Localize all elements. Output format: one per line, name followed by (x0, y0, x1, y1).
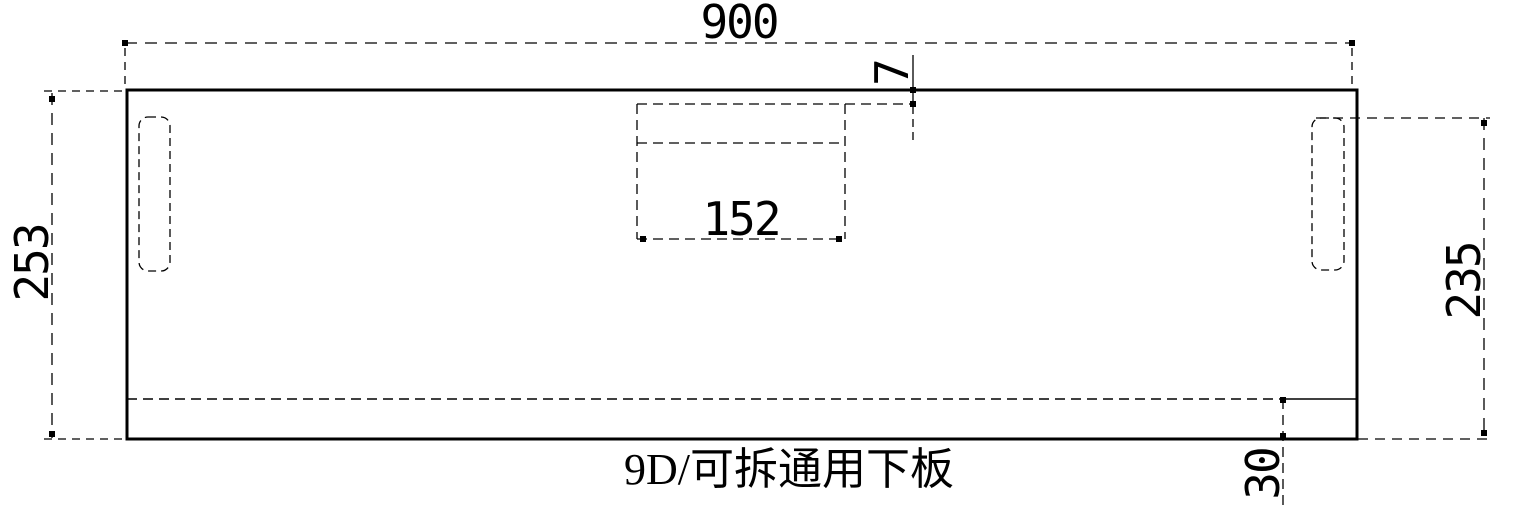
dim-label-overall-width: 900 (700, 0, 777, 45)
dim-label-bottom-strip-height: 30 (1240, 448, 1286, 499)
panel-geometry (127, 90, 1357, 439)
dim-900-tick-left (122, 40, 128, 46)
dim-152-tick-right (836, 236, 842, 242)
dim-30-tick-bottom (1280, 433, 1286, 439)
dim-label-cutout-width: 152 (702, 196, 779, 242)
dim-152-tick-left (640, 236, 646, 242)
dim-7-tick-top (910, 87, 916, 93)
dim-253-tick-bottom (49, 431, 55, 437)
dim-label-right-height: 235 (1441, 242, 1487, 319)
left-slot (139, 117, 170, 271)
dim-7-tick-bottom (910, 101, 916, 107)
cad-drawing-canvas: 900 152 253 235 7 30 9D/可拆通用下板 (0, 0, 1519, 507)
panel-drawing (0, 0, 1519, 507)
dim-900-tick-right (1349, 40, 1355, 46)
dim-253-tick-top (49, 96, 55, 102)
dim-235-tick-bottom (1481, 430, 1487, 436)
drawing-title: 9D/可拆通用下板 (624, 448, 954, 492)
right-slot (1312, 118, 1344, 270)
dim-235-tick-top (1481, 120, 1487, 126)
dim-label-left-height: 253 (9, 224, 55, 301)
dim-30-tick-top (1280, 397, 1286, 403)
dim-label-cutout-top-offset: 7 (869, 60, 915, 86)
